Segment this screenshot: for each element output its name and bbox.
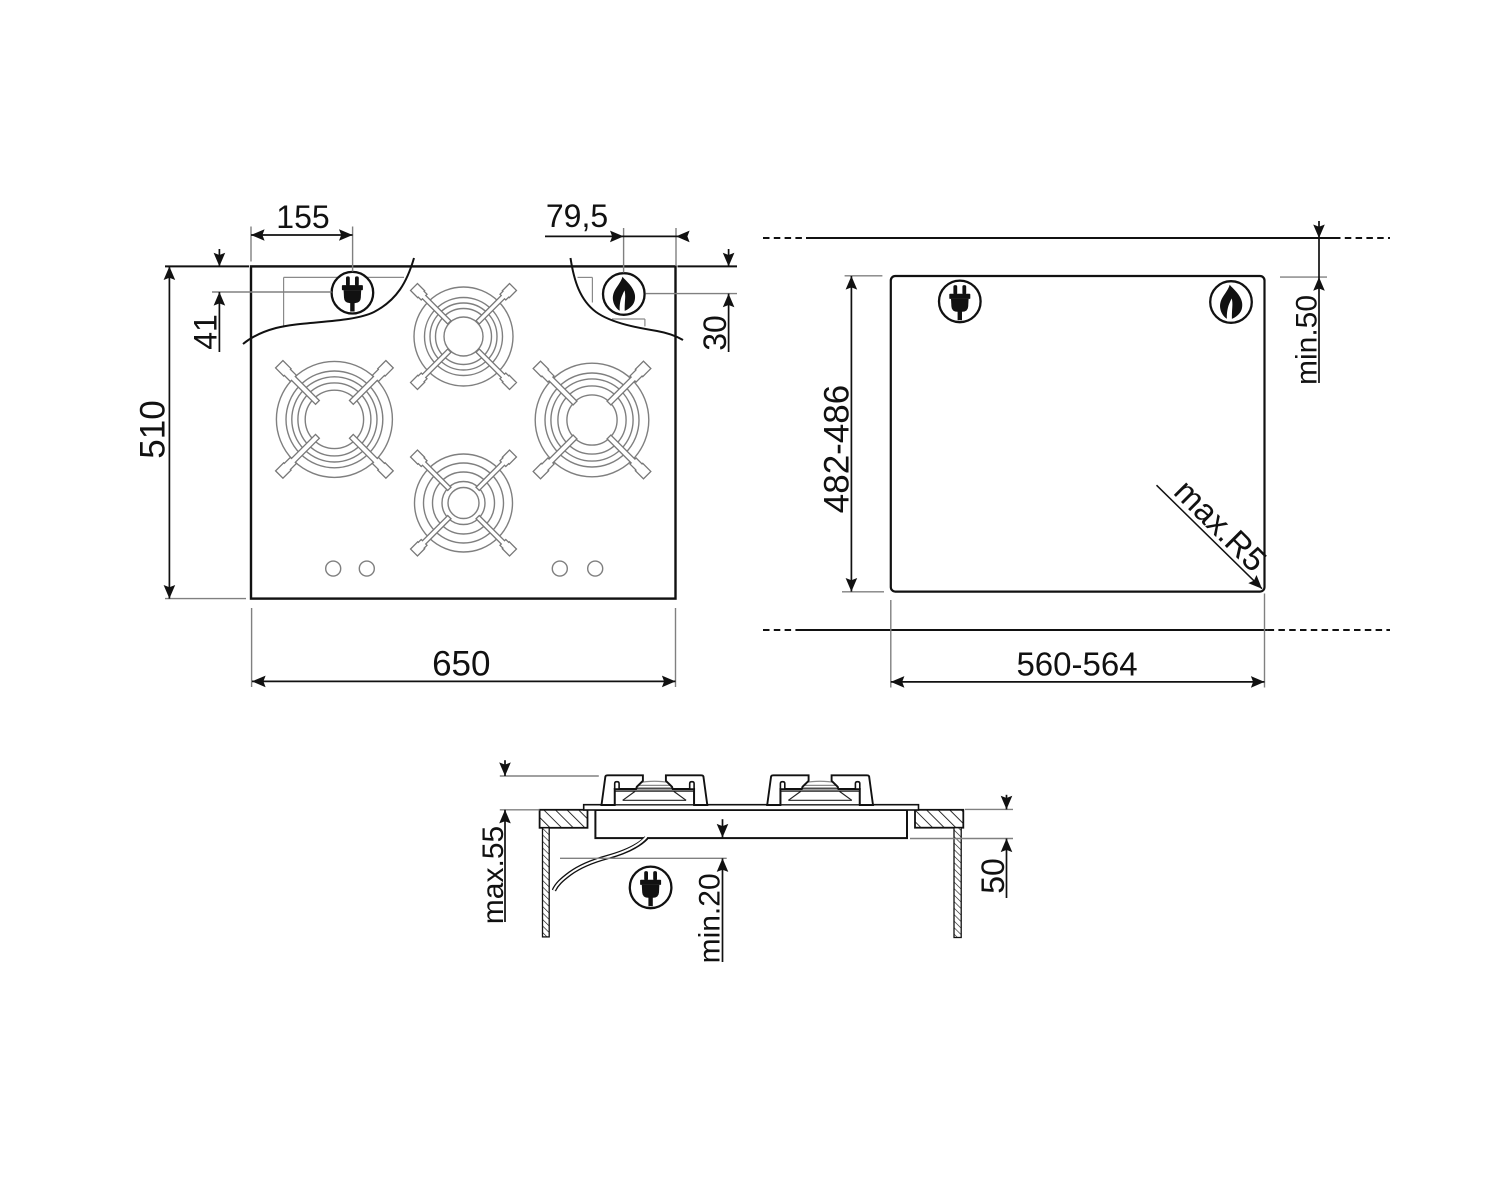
svg-text:50: 50	[975, 858, 1011, 894]
svg-text:min.20: min.20	[694, 873, 727, 963]
svg-text:650: 650	[432, 645, 490, 684]
svg-text:max.55: max.55	[477, 826, 510, 924]
svg-text:482-486: 482-486	[818, 385, 857, 513]
svg-text:560-564: 560-564	[1016, 646, 1137, 683]
svg-text:79,5: 79,5	[546, 198, 608, 234]
svg-text:min.50: min.50	[1291, 295, 1324, 385]
svg-text:30: 30	[697, 315, 733, 351]
svg-text:155: 155	[276, 199, 329, 235]
svg-text:41: 41	[188, 314, 224, 350]
svg-text:510: 510	[134, 400, 173, 458]
